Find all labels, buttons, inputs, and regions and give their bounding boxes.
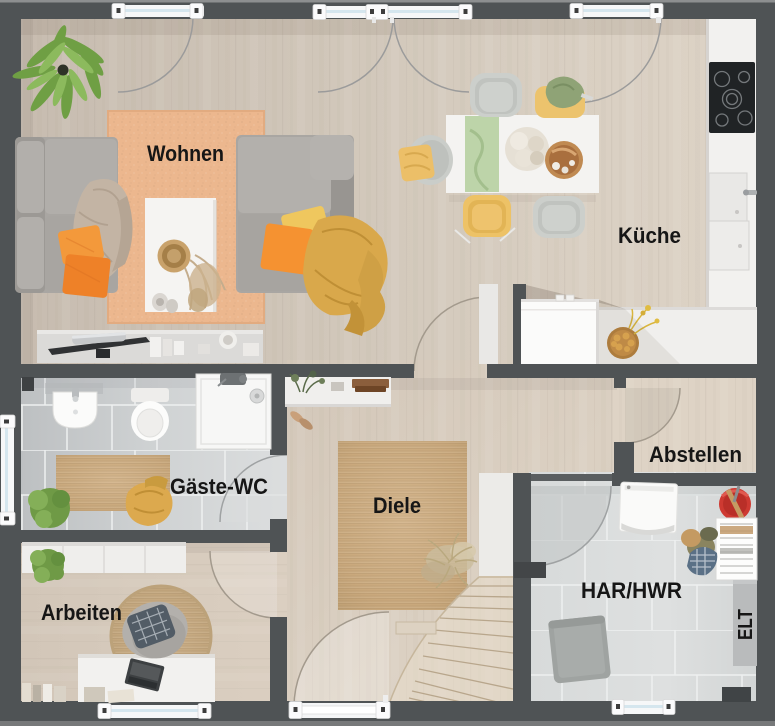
svg-text:Küche: Küche [618, 223, 681, 248]
svg-text:ELT: ELT [735, 609, 757, 640]
svg-text:Wohnen: Wohnen [147, 141, 224, 166]
svg-text:Diele: Diele [373, 493, 421, 518]
svg-text:Gäste-WC: Gäste-WC [170, 474, 268, 499]
svg-text:HAR/HWR: HAR/HWR [581, 578, 682, 603]
svg-text:Arbeiten: Arbeiten [41, 600, 122, 625]
svg-text:Abstellen: Abstellen [649, 442, 742, 467]
